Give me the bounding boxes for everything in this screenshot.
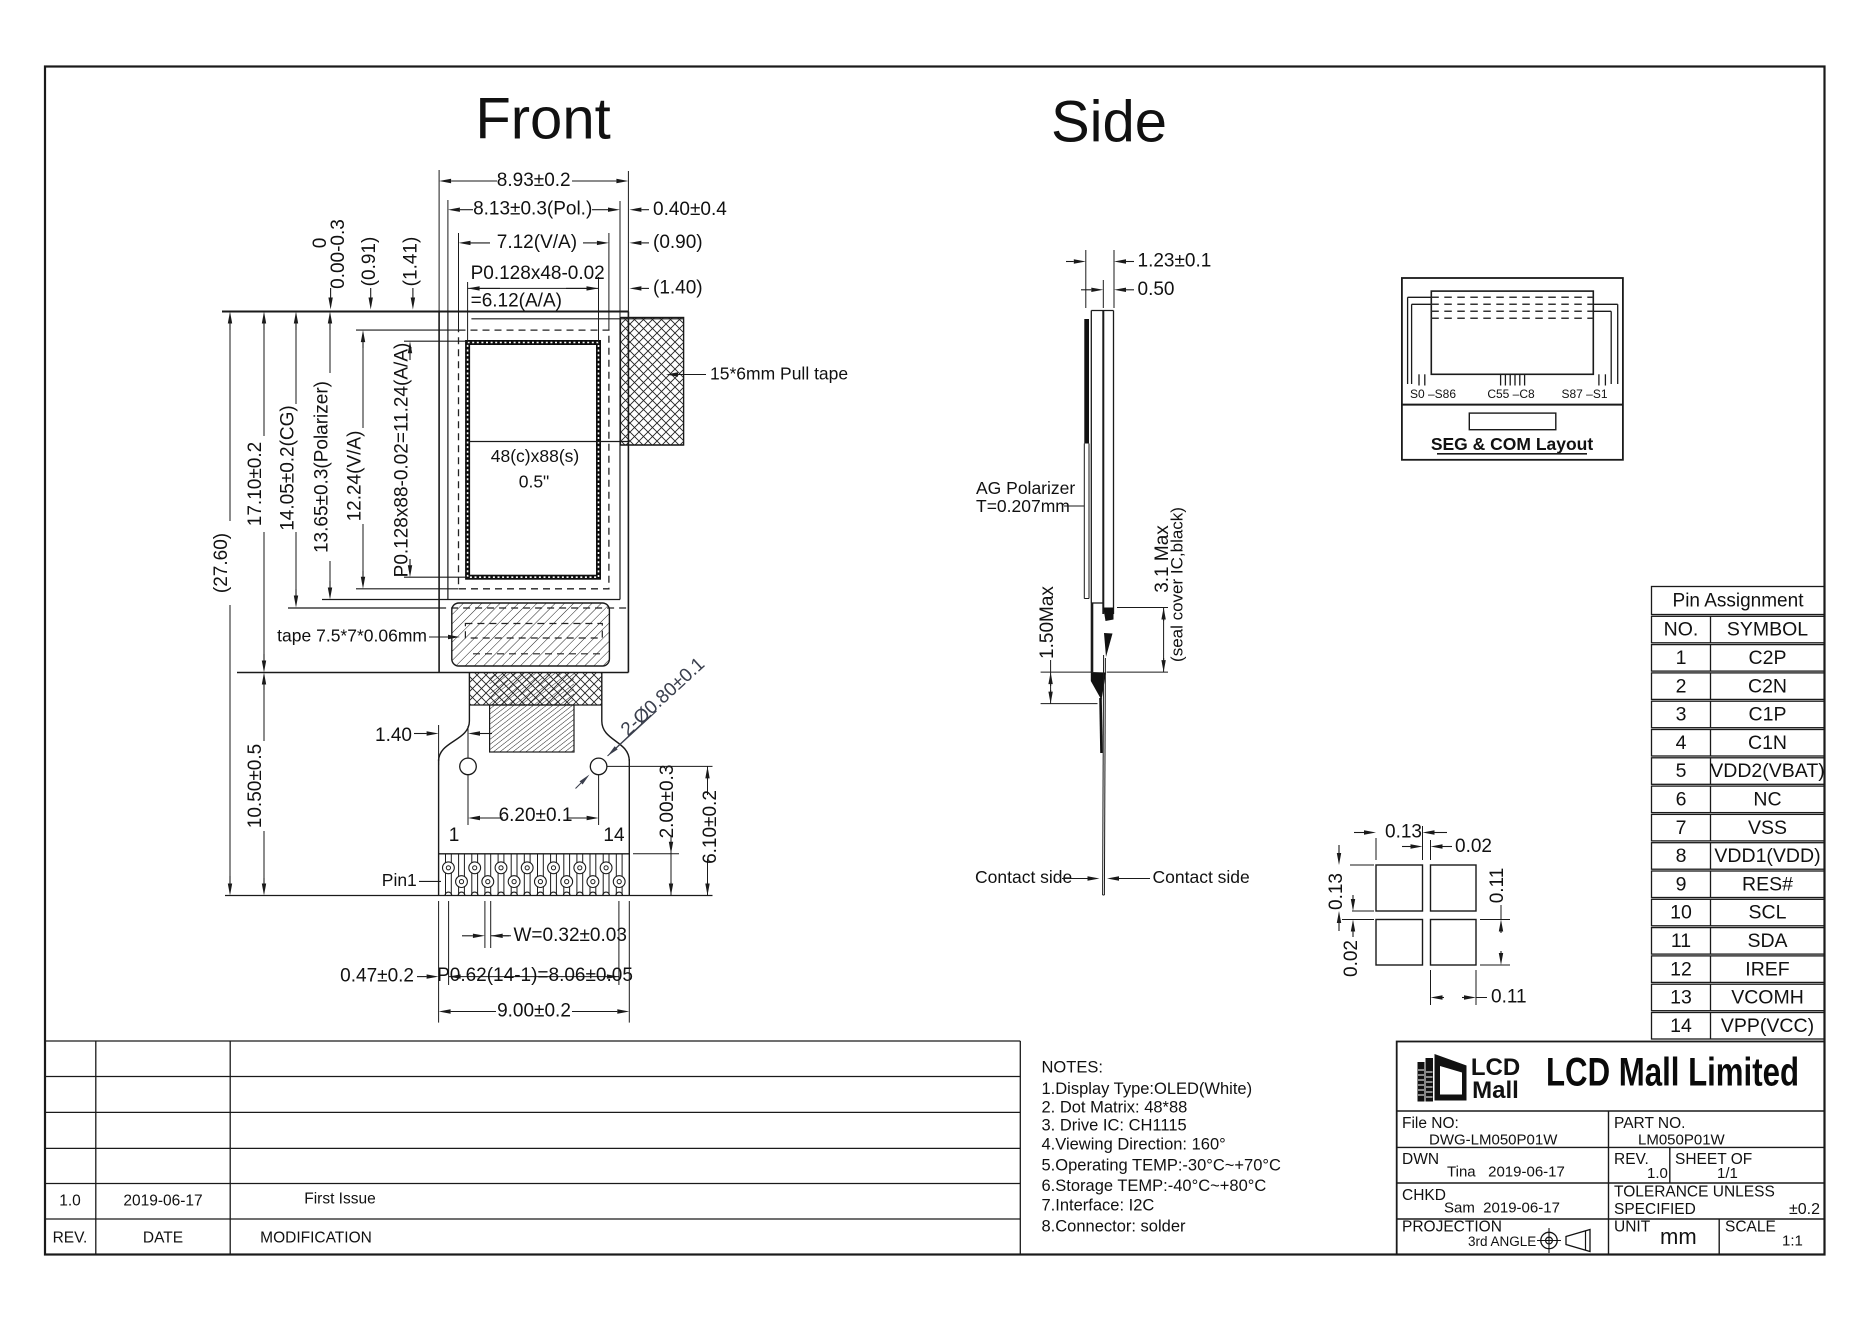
svg-text:Pin1: Pin1 bbox=[382, 870, 417, 890]
svg-text:(0.91): (0.91) bbox=[359, 237, 380, 287]
svg-text:(seal cover IC,black): (seal cover IC,black) bbox=[1167, 507, 1186, 662]
svg-text:8: 8 bbox=[1676, 845, 1687, 867]
svg-text:RES#: RES# bbox=[1742, 873, 1793, 895]
svg-text:0.02: 0.02 bbox=[1341, 940, 1362, 977]
svg-text:9: 9 bbox=[1676, 873, 1687, 895]
svg-text:=6.12(A/A): =6.12(A/A) bbox=[471, 291, 562, 312]
svg-text:5.Operating TEMP:-30°C~+70°C: 5.Operating TEMP:-30°C~+70°C bbox=[1042, 1156, 1282, 1174]
svg-text:6.20±0.1: 6.20±0.1 bbox=[499, 805, 573, 826]
svg-text:SCL: SCL bbox=[1749, 902, 1787, 924]
svg-text:3: 3 bbox=[1676, 704, 1687, 726]
svg-text:17.10±0.2: 17.10±0.2 bbox=[245, 442, 266, 526]
svg-text:13.65±0.3(Polarizer): 13.65±0.3(Polarizer) bbox=[312, 381, 333, 553]
svg-text:0.40±0.4: 0.40±0.4 bbox=[653, 199, 727, 220]
svg-text:VPP(VCC): VPP(VCC) bbox=[1721, 1015, 1814, 1037]
svg-text:1:1: 1:1 bbox=[1782, 1232, 1803, 1249]
svg-text:IREF: IREF bbox=[1745, 958, 1790, 980]
svg-text:(0.90): (0.90) bbox=[653, 232, 703, 253]
svg-text:5: 5 bbox=[1676, 760, 1687, 782]
svg-text:SHEET OF: SHEET OF bbox=[1675, 1151, 1752, 1168]
svg-text:14.05±0.2(CG): 14.05±0.2(CG) bbox=[278, 405, 299, 531]
svg-text:1.0: 1.0 bbox=[1647, 1165, 1668, 1182]
svg-text:15*6mm Pull tape: 15*6mm Pull tape bbox=[710, 364, 848, 384]
svg-text:13: 13 bbox=[1670, 987, 1692, 1009]
svg-text:Side: Side bbox=[1051, 89, 1167, 154]
svg-text:0.5": 0.5" bbox=[519, 472, 550, 492]
svg-text:P0.128x48-0.02: P0.128x48-0.02 bbox=[471, 263, 605, 284]
svg-text:mm: mm bbox=[1660, 1224, 1697, 1249]
svg-text:0.50: 0.50 bbox=[1138, 279, 1175, 300]
svg-text:VSS: VSS bbox=[1748, 817, 1787, 839]
svg-text:(1.40): (1.40) bbox=[653, 277, 703, 298]
svg-text:C2N: C2N bbox=[1748, 675, 1787, 697]
svg-text:NO.: NO. bbox=[1664, 619, 1699, 641]
svg-text:NC: NC bbox=[1753, 789, 1781, 811]
svg-text:Pin Assignment: Pin Assignment bbox=[1673, 591, 1805, 612]
svg-text:Mall: Mall bbox=[1472, 1077, 1519, 1104]
svg-text:8.93±0.2: 8.93±0.2 bbox=[497, 170, 571, 191]
svg-text:AG Polarizer: AG Polarizer bbox=[976, 478, 1075, 498]
svg-text:11: 11 bbox=[1671, 930, 1691, 952]
svg-text:NOTES:: NOTES: bbox=[1042, 1058, 1103, 1076]
svg-text:PROJECTION: PROJECTION bbox=[1402, 1219, 1502, 1236]
svg-text:6.Storage TEMP:-40°C~+80°C: 6.Storage TEMP:-40°C~+80°C bbox=[1042, 1177, 1267, 1195]
svg-text:SDA: SDA bbox=[1747, 930, 1787, 952]
svg-text:VCOMH: VCOMH bbox=[1731, 987, 1804, 1009]
svg-text:P0.62(14-1)=8.06±0.05: P0.62(14-1)=8.06±0.05 bbox=[437, 965, 633, 986]
svg-text:C1N: C1N bbox=[1748, 732, 1787, 754]
svg-text:Contact side: Contact side bbox=[1153, 867, 1250, 887]
svg-text:Front: Front bbox=[475, 86, 610, 151]
svg-text:DWN: DWN bbox=[1402, 1151, 1439, 1168]
svg-text:14: 14 bbox=[603, 825, 625, 846]
svg-text:8.Connector: solder: 8.Connector: solder bbox=[1042, 1217, 1187, 1235]
svg-text:48(c)x88(s): 48(c)x88(s) bbox=[491, 446, 580, 466]
svg-text:0.47±0.2: 0.47±0.2 bbox=[340, 966, 414, 987]
svg-text:REV.: REV. bbox=[53, 1230, 88, 1247]
svg-text:DATE: DATE bbox=[143, 1230, 183, 1247]
svg-text:1.Display Type:OLED(White): 1.Display Type:OLED(White) bbox=[1042, 1080, 1253, 1098]
svg-text:9.00±0.2: 9.00±0.2 bbox=[497, 1000, 571, 1021]
svg-text:Sam 2019-06-17: Sam 2019-06-17 bbox=[1444, 1199, 1560, 1216]
svg-text:1.50Max: 1.50Max bbox=[1037, 586, 1058, 659]
svg-text:4.Viewing Direction: 160°: 4.Viewing Direction: 160° bbox=[1042, 1135, 1226, 1153]
svg-text:1: 1 bbox=[449, 825, 460, 846]
svg-text:1/1: 1/1 bbox=[1717, 1165, 1738, 1182]
svg-text:3. Drive IC: CH1115: 3. Drive IC: CH1115 bbox=[1042, 1116, 1187, 1134]
svg-text:S0 –S86: S0 –S86 bbox=[1410, 387, 1456, 401]
svg-text:TOLERANCE UNLESS: TOLERANCE UNLESS bbox=[1614, 1184, 1775, 1201]
svg-text:Tina 2019-06-17: Tina 2019-06-17 bbox=[1447, 1163, 1565, 1180]
svg-text:SCALE: SCALE bbox=[1725, 1219, 1776, 1236]
svg-text:2019-06-17: 2019-06-17 bbox=[123, 1193, 202, 1210]
svg-text:Contact side: Contact side bbox=[975, 867, 1072, 887]
svg-text:P0.128x88-0.02=11.24(A/A): P0.128x88-0.02=11.24(A/A) bbox=[392, 343, 413, 578]
svg-text:LM050P01W: LM050P01W bbox=[1638, 1131, 1726, 1148]
svg-text:1: 1 bbox=[1676, 647, 1687, 669]
svg-text:7.12(V/A): 7.12(V/A) bbox=[497, 232, 577, 253]
svg-text:0.02: 0.02 bbox=[1455, 836, 1492, 857]
svg-text:C1P: C1P bbox=[1749, 704, 1787, 726]
svg-text:7.Interface: I2C: 7.Interface: I2C bbox=[1042, 1196, 1155, 1214]
svg-text:0.11: 0.11 bbox=[1491, 987, 1527, 1008]
svg-text:UNIT: UNIT bbox=[1614, 1219, 1651, 1236]
svg-text:CHKD: CHKD bbox=[1402, 1187, 1446, 1204]
svg-text:14: 14 bbox=[1670, 1015, 1692, 1037]
svg-text:6: 6 bbox=[1676, 789, 1687, 811]
svg-text:W=0.32±0.03: W=0.32±0.03 bbox=[514, 925, 627, 946]
svg-text:3rd ANGLE: 3rd ANGLE bbox=[1468, 1234, 1536, 1249]
svg-text:File NO:: File NO: bbox=[1402, 1115, 1459, 1132]
svg-text:±0.2: ±0.2 bbox=[1789, 1201, 1820, 1218]
svg-text:1.0: 1.0 bbox=[59, 1193, 81, 1210]
svg-text:SEG & COM Layout: SEG & COM Layout bbox=[1431, 434, 1594, 454]
svg-text:SPECIFIED: SPECIFIED bbox=[1614, 1201, 1696, 1218]
svg-text:4: 4 bbox=[1676, 732, 1687, 754]
svg-text:6.10±0.2: 6.10±0.2 bbox=[700, 790, 721, 864]
svg-text:VDD1(VDD): VDD1(VDD) bbox=[1714, 845, 1820, 867]
svg-text:12.24(V/A): 12.24(V/A) bbox=[345, 431, 366, 522]
svg-text:0.11: 0.11 bbox=[1487, 868, 1508, 904]
svg-text:S87 –S1: S87 –S1 bbox=[1561, 387, 1607, 401]
svg-text:(27.60): (27.60) bbox=[211, 533, 232, 593]
svg-text:DWG-LM050P01W: DWG-LM050P01W bbox=[1429, 1131, 1558, 1148]
svg-text:LCD Mall Limited: LCD Mall Limited bbox=[1546, 1050, 1799, 1095]
svg-text:VDD2(VBAT): VDD2(VBAT) bbox=[1710, 760, 1825, 782]
svg-text:10: 10 bbox=[1670, 902, 1692, 924]
svg-text:2: 2 bbox=[1676, 675, 1687, 697]
svg-text:0.13: 0.13 bbox=[1326, 873, 1347, 910]
svg-text:First Issue: First Issue bbox=[304, 1191, 375, 1208]
svg-text:12: 12 bbox=[1670, 958, 1692, 980]
svg-text:REV.: REV. bbox=[1614, 1151, 1649, 1168]
svg-text:2. Dot Matrix: 48*88: 2. Dot Matrix: 48*88 bbox=[1042, 1098, 1188, 1116]
svg-text:T=0.207mm: T=0.207mm bbox=[976, 496, 1070, 516]
svg-text:0.00-0.3: 0.00-0.3 bbox=[328, 219, 349, 289]
svg-text:C55 –C8: C55 –C8 bbox=[1487, 387, 1535, 401]
svg-text:tape 7.5*7*0.06mm: tape 7.5*7*0.06mm bbox=[277, 626, 427, 646]
svg-text:1.40: 1.40 bbox=[375, 725, 412, 746]
svg-text:0.13: 0.13 bbox=[1385, 822, 1422, 843]
svg-text:SYMBOL: SYMBOL bbox=[1727, 619, 1808, 641]
svg-text:2.00±0.3: 2.00±0.3 bbox=[657, 765, 678, 839]
svg-text:C2P: C2P bbox=[1749, 647, 1787, 669]
svg-text:1.23±0.1: 1.23±0.1 bbox=[1138, 251, 1212, 272]
svg-text:MODIFICATION: MODIFICATION bbox=[260, 1230, 372, 1247]
svg-text:PART NO.: PART NO. bbox=[1614, 1115, 1686, 1132]
svg-text:10.50±0.5: 10.50±0.5 bbox=[245, 744, 266, 828]
svg-text:(1.41): (1.41) bbox=[401, 237, 422, 287]
svg-text:7: 7 bbox=[1676, 817, 1687, 839]
svg-text:8.13±0.3(Pol.): 8.13±0.3(Pol.) bbox=[473, 199, 592, 220]
